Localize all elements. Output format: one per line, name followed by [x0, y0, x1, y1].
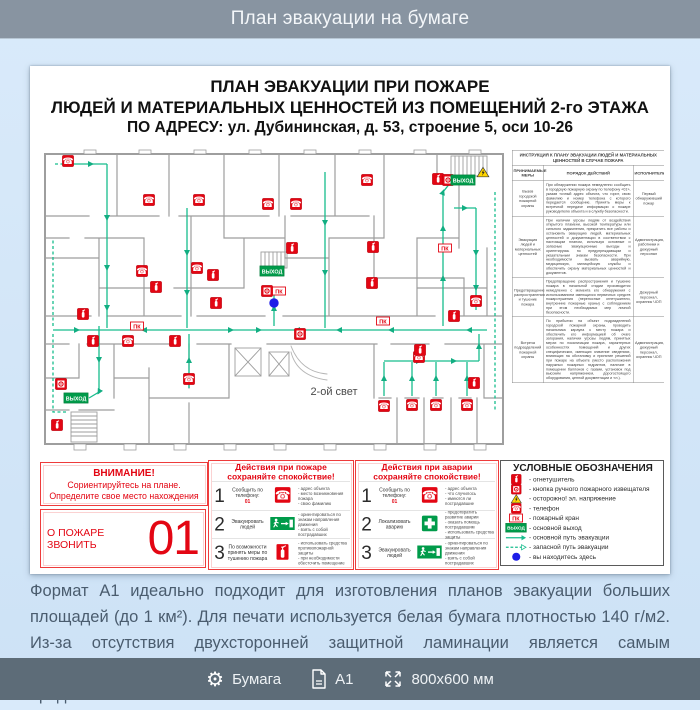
spec-format-label: А1 — [335, 671, 353, 688]
accident-actions-title: Действия при аварии сохраняйте спокойств… — [356, 461, 498, 482]
voltage-icon — [510, 494, 522, 504]
action-step-label: Сообщить по телефону:01 — [227, 487, 268, 504]
instruction-col-executors: ИСПОЛНИТЕЛИ — [633, 165, 664, 181]
phone-icon — [430, 399, 441, 410]
extinguisher-icon — [207, 269, 218, 280]
legend-item: - огнетушитель — [503, 475, 663, 485]
legend-item: - кнопка ручного пожарного извещателя — [503, 484, 663, 494]
action-row: 3По возможности принять меры по тушению … — [212, 539, 350, 568]
action-step-label: Сообщить по телефону:01 — [374, 487, 415, 504]
call-point-icon — [55, 378, 66, 389]
action-step-bullets: - использовать средства противопожарной … — [297, 541, 350, 566]
spec-size: 800х600 мм — [383, 669, 493, 689]
gear-icon: ⚙ — [206, 669, 224, 689]
evacuation-plan-poster: ПЛАН ЭВАКУАЦИИ ПРИ ПОЖАРЕ ЛЮДЕЙ И МАТЕРИ… — [30, 66, 670, 574]
fire-hydrant-sign — [439, 244, 452, 252]
phone-icon — [193, 194, 204, 205]
phone-icon — [143, 194, 154, 205]
main-route-icon — [505, 534, 527, 542]
legend-item-label: - основной выход — [529, 524, 582, 531]
fire-hydrant-sign — [131, 322, 144, 330]
phone-icon — [378, 400, 389, 411]
instruction-row: Эвакуация людей и материальных ценностей… — [512, 216, 664, 277]
spec-format: А1 — [311, 669, 353, 689]
phone-icon — [183, 373, 194, 384]
instruction-title: ИНСТРУКЦИЯ К ПЛАНУ ЭВАКУАЦИИ ЛЮДЕЙ И МАТ… — [512, 150, 664, 165]
extinguisher-icon — [286, 242, 297, 253]
action-step-label: Эвакуировать людей — [374, 547, 415, 559]
extinguisher-icon — [77, 308, 88, 319]
extinguisher-icon — [169, 335, 180, 346]
call-number: 01 — [148, 515, 199, 563]
call-point-icon — [261, 285, 272, 296]
poster-title: ПЛАН ЭВАКУАЦИИ ПРИ ПОЖАРЕ ЛЮДЕЙ И МАТЕРИ… — [30, 76, 670, 138]
fire-actions-box: Действия при пожаре сохраняйте спокойств… — [208, 460, 354, 570]
action-step-bullets: - ориентироваться по знакам направления … — [444, 541, 495, 566]
legend-item: - вы находитесь здесь — [503, 552, 663, 562]
extinguisher-icon — [432, 173, 443, 184]
legend-item: - пожарный кран — [503, 513, 663, 523]
exit-icon — [505, 523, 527, 533]
legend-item-label: - огнетушитель — [529, 476, 575, 483]
extinguisher-icon — [51, 419, 62, 430]
exit-sign — [64, 393, 88, 403]
extinguisher-icon — [367, 241, 378, 252]
action-step-number: 2 — [359, 515, 374, 534]
action-step-number: 3 — [212, 544, 227, 563]
action-step-bullets: - адрес объекта- что случилось- имеются … — [444, 486, 495, 506]
second-light-label: 2-ой свет — [310, 386, 357, 398]
call-01-box: О ПОЖАРЕ ЗВОНИТЬ 01 — [40, 509, 206, 568]
action-step-number: 1 — [212, 487, 227, 506]
action-step-bullets: - адрес объекта- место возникновения пож… — [297, 486, 350, 506]
legend-title: УСЛОВНЫЕ ОБОЗНАЧЕНИЯ — [503, 462, 663, 475]
attention-title: ВНИМАНИЕ! — [41, 467, 207, 480]
action-step-number: 1 — [359, 487, 374, 506]
attention-line3: Определите свое место нахождения — [41, 491, 207, 502]
extinguisher-icon — [448, 310, 459, 321]
extinguisher-icon — [468, 377, 479, 388]
fire-hydrant-sign — [377, 317, 390, 325]
action-step-label: По возможности принять меры по тушению п… — [227, 544, 268, 561]
action-step-number: 3 — [359, 544, 374, 563]
instruction-row: Встреча подразделений пожарной охраныПо … — [512, 317, 664, 383]
instruction-row: Вызов городской пожарной охраныПри обнар… — [512, 181, 664, 216]
legend-item: - осторожно! эл. напряжение — [503, 494, 663, 504]
you-are-here-marker — [269, 298, 278, 307]
phone-icon — [62, 155, 73, 166]
reserve-route-icon — [505, 543, 527, 551]
sheet-icon — [311, 669, 327, 689]
instruction-table: ИНСТРУКЦИЯ К ПЛАНУ ЭВАКУАЦИИ ЛЮДЕЙ И МАТ… — [512, 150, 664, 456]
action-row: 1Сообщить по телефону:01- адрес объекта-… — [359, 482, 495, 511]
poster-title-line1: ПЛАН ЭВАКУАЦИИ ПРИ ПОЖАРЕ — [30, 76, 670, 97]
spec-material: ⚙ Бумага — [206, 669, 281, 689]
phone-icon — [417, 486, 443, 503]
instruction-col-measures: ПРИНИМАЕМЫЕ МЕРЫ — [512, 165, 543, 181]
extinguisher-icon — [150, 281, 161, 292]
spec-material-label: Бумага — [232, 671, 281, 688]
instruction-col-actions: ПОРЯДОК ДЕЙСТВИЙ — [543, 165, 633, 181]
action-step-bullets: - предотвратить развитие аварии- оказать… — [444, 510, 495, 540]
fire-actions-title: Действия при пожаре сохраняйте спокойств… — [209, 461, 353, 482]
extinguisher-icon — [87, 335, 98, 346]
legend-item: - основной выход — [503, 523, 663, 533]
action-row: 2Эвакуировать людей- ориентироваться по … — [212, 510, 350, 539]
action-row: 2Локализовать аварию- предотвратить разв… — [359, 510, 495, 539]
you-are-here-icon — [511, 552, 521, 562]
call-point-icon — [511, 484, 522, 495]
extinguisher-icon — [270, 543, 296, 560]
footer-bar: ⚙ Бумага А1 800х600 мм — [0, 658, 700, 700]
legend-item: - телефон — [503, 504, 663, 514]
phone-icon — [470, 295, 481, 306]
spec-size-label: 800х600 мм — [411, 671, 493, 688]
phone-icon — [361, 174, 372, 185]
phone-icon — [406, 399, 417, 410]
phone-icon — [511, 503, 522, 514]
hydrant-icon — [509, 514, 523, 523]
header-bar: План эвакуации на бумаге — [0, 0, 700, 38]
poster-title-line3: ПО АДРЕСУ: ул. Дубининская, д. 53, строе… — [30, 118, 670, 138]
extinguisher-icon — [210, 297, 221, 308]
stairs-bottom-left — [71, 412, 97, 442]
legend-item-label: - телефон — [529, 505, 559, 512]
first-aid-icon — [417, 515, 443, 532]
action-step-label: Локализовать аварию — [374, 519, 415, 531]
action-row: 1Сообщить по телефону:01- адрес объекта-… — [212, 482, 350, 511]
fire-hydrant-sign — [273, 287, 286, 295]
extinguisher-icon — [414, 344, 425, 355]
attention-line2: Сориентируйтесь на плане. — [41, 480, 207, 491]
floor-plan: 2-ой свет — [38, 148, 510, 458]
phone-icon — [191, 262, 202, 273]
call-point-icon — [294, 328, 305, 339]
instruction-row: Предотвращение распространения и тушение… — [512, 277, 664, 317]
extinguisher-icon — [366, 277, 377, 288]
legend-item-label: - запасной путь эвакуации — [529, 544, 609, 551]
exit-route-icon — [417, 543, 443, 560]
dimensions-icon — [383, 669, 403, 689]
legend-item-label: - вы находитесь здесь — [529, 553, 596, 560]
action-step-label: Эвакуировать людей — [227, 519, 268, 531]
attention-box: ВНИМАНИЕ! Сориентируйтесь на плане. Опре… — [40, 462, 208, 506]
exit-sign — [260, 266, 284, 276]
phone-icon — [262, 198, 273, 209]
call-label: О ПОЖАРЕ ЗВОНИТЬ — [47, 527, 148, 551]
exit-sign — [451, 175, 475, 185]
page: { "header": { "title": "План эвакуации н… — [0, 0, 700, 700]
action-step-number: 2 — [212, 515, 227, 534]
phone-icon — [290, 198, 301, 209]
legend-item-label: - основной путь эвакуации — [529, 534, 609, 541]
legend-item-label: - кнопка ручного пожарного извещателя — [529, 486, 650, 493]
phone-icon — [122, 335, 133, 346]
phone-icon — [461, 399, 472, 410]
legend-item-label: - осторожно! эл. напряжение — [529, 495, 616, 502]
action-row: 3Эвакуировать людей- ориентироваться по … — [359, 539, 495, 568]
legend-item: - запасной путь эвакуации — [503, 542, 663, 552]
page-title: План эвакуации на бумаге — [231, 8, 470, 30]
exit-route-icon — [270, 515, 296, 532]
legend-item: - основной путь эвакуации — [503, 533, 663, 543]
elevator-shafts — [235, 348, 289, 376]
phone-icon — [270, 486, 296, 503]
legend-item-label: - пожарный кран — [529, 515, 579, 522]
poster-title-line2: ЛЮДЕЙ И МАТЕРИАЛЬНЫХ ЦЕННОСТЕЙ ИЗ ПОМЕЩЕ… — [30, 97, 670, 118]
phone-icon — [136, 265, 147, 276]
legend-box: УСЛОВНЫЕ ОБОЗНАЧЕНИЯ - огнетушитель- кно… — [500, 460, 664, 566]
action-step-bullets: - ориентироваться по знакам направления … — [297, 512, 350, 537]
accident-actions-box: Действия при аварии сохраняйте спокойств… — [355, 460, 499, 570]
